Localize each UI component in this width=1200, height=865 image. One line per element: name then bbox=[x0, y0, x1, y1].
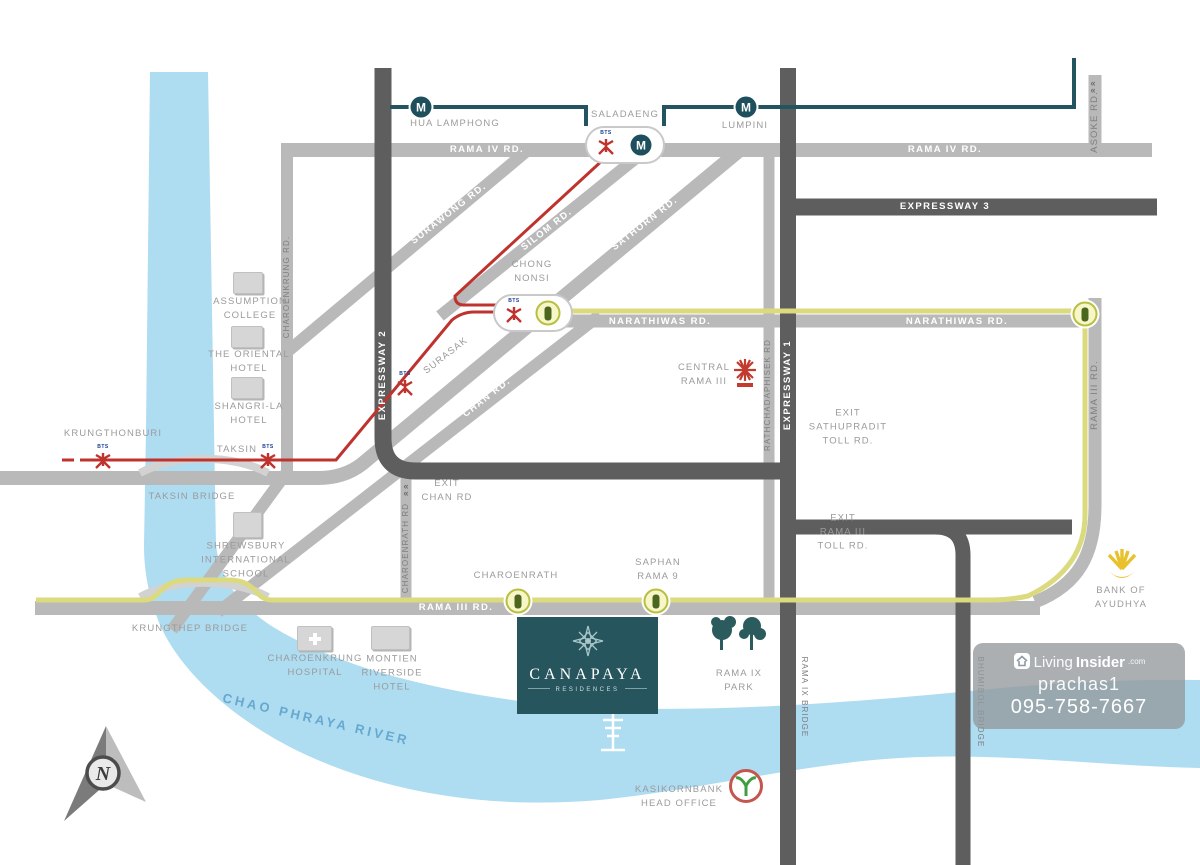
bridge-label-rama9: RAMA IX BRIDGE bbox=[798, 657, 810, 738]
exit-label-sathupradit: EXIT SATHUPRADIT TOLL RD. bbox=[809, 406, 887, 447]
road-label-asoke: ASOKE RD. bbox=[1088, 91, 1102, 153]
exit-label-chan: EXIT CHAN RD bbox=[422, 477, 473, 505]
brt-station-icon-chong-nonsi bbox=[536, 301, 561, 326]
road-label-ratchadaphisek: RATHCHADAPHISEK RD bbox=[762, 339, 774, 451]
brt-station-icon-saphan-rama9 bbox=[644, 589, 669, 614]
mrt-letter: M bbox=[741, 100, 751, 114]
landmark-label-charoenkrung-hospital: CHAROENKRUNG HOSPITAL bbox=[267, 652, 362, 680]
bts-station-icon-krungthonburi: BTS bbox=[91, 444, 115, 474]
project-name: CANAPAYA bbox=[517, 666, 658, 684]
station-label-hua-lamphong: HUA LAMPHONG bbox=[410, 117, 500, 131]
exit-chevron-icon-rama3: « « bbox=[795, 536, 800, 550]
shangrila-hotel-building bbox=[231, 377, 263, 399]
charoenkrung-hospital-building bbox=[297, 626, 332, 651]
brt-station-icon-charoenrath bbox=[506, 589, 531, 614]
brt-station-icon-narathiwas-corner bbox=[1073, 302, 1098, 327]
landmark-label-montien-hotel: MONTIEN RIVERSIDE HOTEL bbox=[361, 652, 422, 693]
landmark-label-shangrila-hotel: SHANGRI-LA HOTEL bbox=[214, 400, 283, 428]
mrt-line-east bbox=[664, 58, 1074, 126]
watermark-brand-living: Living bbox=[1034, 655, 1073, 671]
landmark-label-kasikornbank: KASIKORNBANK HEAD OFFICE bbox=[635, 783, 723, 811]
living-insider-house-icon bbox=[1013, 652, 1031, 670]
station-label-saladaeng: SALADAENG bbox=[591, 108, 659, 122]
station-label-taksin: TAKSIN bbox=[217, 443, 257, 457]
road-label-rama4-east: RAMA IV RD. bbox=[908, 143, 982, 157]
canapaya-logo-icon bbox=[571, 624, 605, 660]
mrt-letter: M bbox=[416, 100, 426, 114]
bts-station-icon-chong-nonsi: BTS bbox=[502, 298, 526, 328]
landmark-label-central-rama3: CENTRAL RAMA III bbox=[678, 361, 730, 389]
road-label-expressway1: EXPRESSWAY 1 bbox=[781, 340, 795, 430]
road-label-rama4-west: RAMA IV RD. bbox=[450, 143, 524, 157]
bts-station-icon-surasak: BTS bbox=[393, 371, 417, 401]
station-label-chong-nonsi: CHONG NONSI bbox=[512, 258, 553, 286]
watermark-brand: LivingInsider.com bbox=[973, 652, 1185, 671]
watermark-brand-insider: Insider bbox=[1076, 655, 1125, 671]
watermark-brand-com: .com bbox=[1128, 654, 1145, 670]
bts-station-icon-taksin: BTS bbox=[256, 444, 280, 474]
road-label-charoenrath-rd: CHAROENRATH RD bbox=[400, 503, 412, 593]
landmark-label-shrewsbury-school: SHREWSBURY INTERNATIONAL SCHOOL bbox=[201, 539, 291, 580]
landmark-label-assumption-college: ASSUMPTION COLLEGE bbox=[213, 295, 287, 323]
landmark-label-bank-of-ayudhya: BANK OF AYUDHYA bbox=[1095, 584, 1147, 612]
watermark-phone: 095-758-7667 bbox=[973, 696, 1185, 719]
road-label-charoenkrung: CHAROENKRUNG RD. bbox=[281, 236, 293, 339]
bank-of-ayudhya-icon bbox=[1102, 545, 1142, 585]
mrt-station-icon-lumpini: M bbox=[736, 97, 757, 118]
mrt-station-icon-hua-lamphong: M bbox=[411, 97, 432, 118]
bts-station-icon-saladaeng: BTS bbox=[594, 130, 618, 160]
landmark-label-rama9-park: RAMA IX PARK bbox=[716, 667, 762, 695]
project-subtitle: RESIDENCES bbox=[517, 687, 658, 693]
location-map: M M M BTS BTS BTS BTS BTS bbox=[0, 0, 1200, 865]
road-surawong bbox=[287, 150, 528, 352]
road-label-rama3-horizontal: RAMA III RD. bbox=[419, 601, 494, 615]
road-label-expressway2: EXPRESSWAY 2 bbox=[376, 330, 390, 420]
kasikornbank-icon bbox=[729, 769, 763, 803]
bridge-label-taksin: TAKSIN BRIDGE bbox=[149, 490, 236, 504]
mrt-letter: M bbox=[636, 138, 646, 152]
landmark-label-oriental-hotel: THE ORIENTAL HOTEL bbox=[208, 348, 290, 376]
park-trees-icon bbox=[708, 612, 772, 664]
road-label-expressway3: EXPRESSWAY 3 bbox=[900, 200, 990, 214]
mrt-station-icon-saladaeng: M bbox=[631, 135, 652, 156]
bridge-label-krungthep: KRUNGTHEP BRIDGE bbox=[132, 622, 248, 636]
oriental-hotel-building bbox=[231, 326, 263, 348]
station-label-krungthonburi: KRUNGTHONBURI bbox=[64, 427, 162, 441]
canapaya-residences-block: CANAPAYA RESIDENCES bbox=[517, 617, 658, 714]
exit-chevron-icon-sathupradit: « « bbox=[795, 433, 800, 447]
station-label-saphan-rama9: SAPHAN RAMA 9 bbox=[635, 556, 681, 584]
road-label-narathiwas-east: NARATHIWAS RD. bbox=[906, 315, 1008, 329]
assumption-college-building bbox=[233, 272, 263, 294]
north-compass-icon: N bbox=[56, 722, 152, 826]
central-department-store-icon bbox=[731, 357, 759, 389]
exit-chevron-icon-chan: « « bbox=[403, 483, 408, 497]
watermark: LivingInsider.com prachas1 095-758-7667 bbox=[973, 643, 1185, 729]
watermark-username: prachas1 bbox=[973, 674, 1185, 695]
station-label-charoenrath: CHAROENRATH bbox=[474, 569, 559, 583]
station-label-lumpini: LUMPINI bbox=[722, 119, 768, 133]
hospital-cross-icon bbox=[309, 633, 321, 645]
montien-hotel-building bbox=[371, 626, 410, 650]
road-label-rama3-vertical: RAMA III RD. bbox=[1088, 360, 1102, 430]
shrewsbury-school-building bbox=[233, 512, 262, 538]
road-label-narathiwas-west: NARATHIWAS RD. bbox=[609, 315, 711, 329]
exit-label-rama3: EXIT RAMA III TOLL RD. bbox=[817, 511, 868, 552]
compass-n-letter: N bbox=[95, 763, 112, 785]
